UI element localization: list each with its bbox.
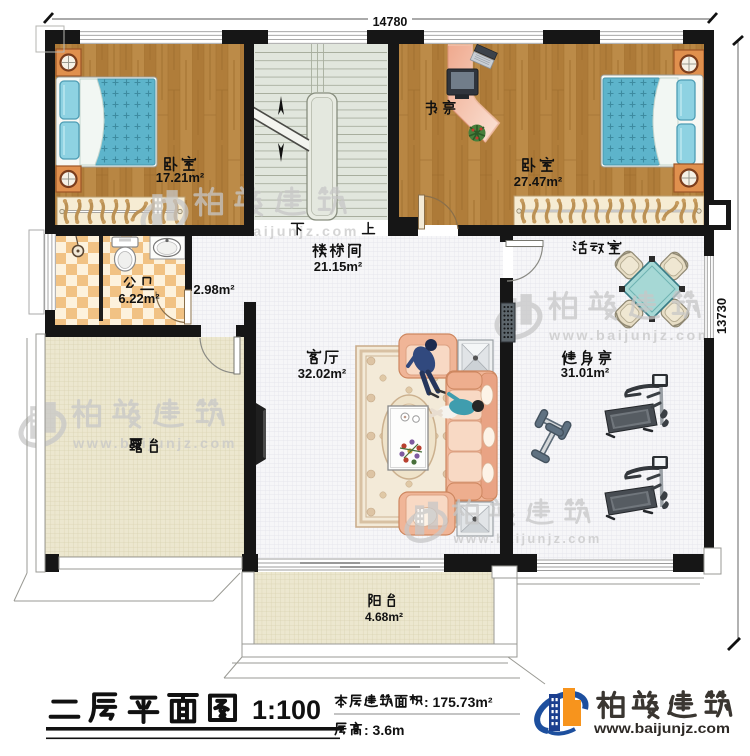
svg-text:www.baijunjz.com: www.baijunjz.com	[72, 436, 237, 452]
svg-text:: 175.73m²: : 175.73m²	[424, 694, 493, 710]
svg-text:13730: 13730	[714, 298, 729, 334]
svg-text:32.02m²: 32.02m²	[298, 366, 347, 381]
svg-text:31.01m²: 31.01m²	[561, 365, 610, 380]
svg-text:17.21m²: 17.21m²	[156, 170, 205, 185]
svg-text:www.baijunjz.com: www.baijunjz.com	[453, 531, 602, 546]
svg-text:1:100: 1:100	[252, 695, 321, 725]
svg-text:4.68m²: 4.68m²	[365, 610, 403, 624]
svg-text:www.baijunjz.com: www.baijunjz.com	[548, 328, 713, 344]
svg-text:21.15m²: 21.15m²	[314, 259, 363, 274]
svg-text:14780: 14780	[373, 15, 408, 29]
svg-text:www.baijunjz.com: www.baijunjz.com	[593, 720, 730, 736]
svg-text:2.98m²: 2.98m²	[193, 282, 235, 297]
svg-text:27.47m²: 27.47m²	[514, 174, 563, 189]
svg-text:: 3.6m: : 3.6m	[364, 722, 404, 738]
svg-text:6.22m²: 6.22m²	[118, 291, 160, 306]
